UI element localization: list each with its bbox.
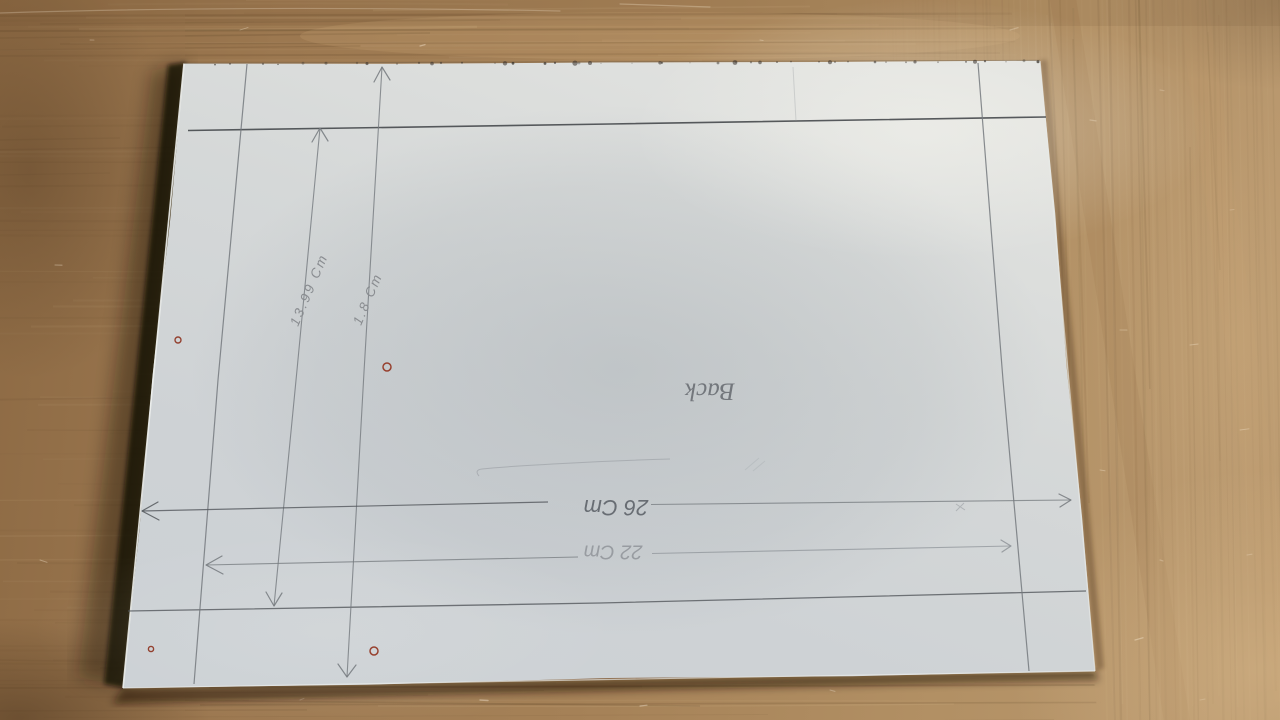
svg-text:Back: Back	[684, 377, 735, 404]
svg-text:22 Cm: 22 Cm	[584, 541, 644, 563]
svg-text:26 Cm: 26 Cm	[584, 495, 650, 520]
